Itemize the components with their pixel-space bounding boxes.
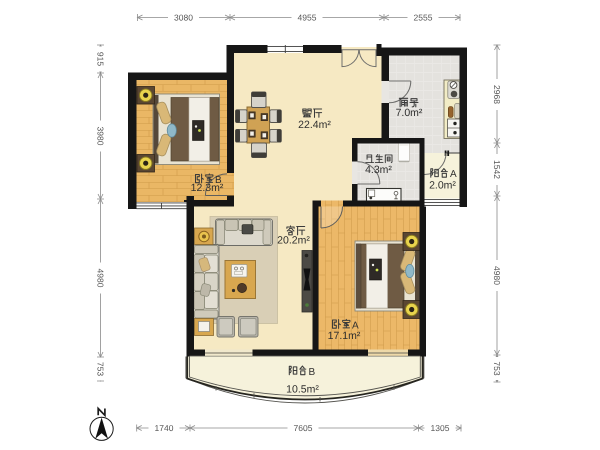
- svg-text:7605: 7605: [294, 423, 313, 433]
- svg-text:12.3m²: 12.3m²: [191, 182, 224, 194]
- svg-text:2.0m²: 2.0m²: [429, 180, 456, 192]
- svg-text:3080: 3080: [174, 13, 193, 23]
- svg-text:1542: 1542: [492, 160, 502, 179]
- svg-text:753: 753: [96, 362, 106, 376]
- svg-text:A: A: [450, 169, 457, 180]
- svg-text:3980: 3980: [96, 127, 106, 146]
- svg-text:1740: 1740: [155, 423, 174, 433]
- svg-text:2555: 2555: [414, 13, 433, 23]
- svg-text:10.5m²: 10.5m²: [286, 384, 319, 396]
- svg-text:20.2m²: 20.2m²: [277, 235, 310, 247]
- svg-text:915: 915: [96, 52, 106, 66]
- svg-text:4980: 4980: [492, 266, 502, 285]
- svg-text:2968: 2968: [492, 85, 502, 104]
- svg-text:17.1m²: 17.1m²: [328, 330, 361, 342]
- svg-text:B: B: [309, 367, 316, 378]
- svg-text:4955: 4955: [298, 13, 317, 23]
- svg-text:1305: 1305: [431, 423, 450, 433]
- svg-text:4.3m²: 4.3m²: [365, 164, 392, 176]
- svg-text:7.0m²: 7.0m²: [396, 107, 423, 119]
- svg-text:22.4m²: 22.4m²: [298, 119, 331, 131]
- svg-text:4980: 4980: [96, 269, 106, 288]
- svg-text:753: 753: [492, 361, 502, 375]
